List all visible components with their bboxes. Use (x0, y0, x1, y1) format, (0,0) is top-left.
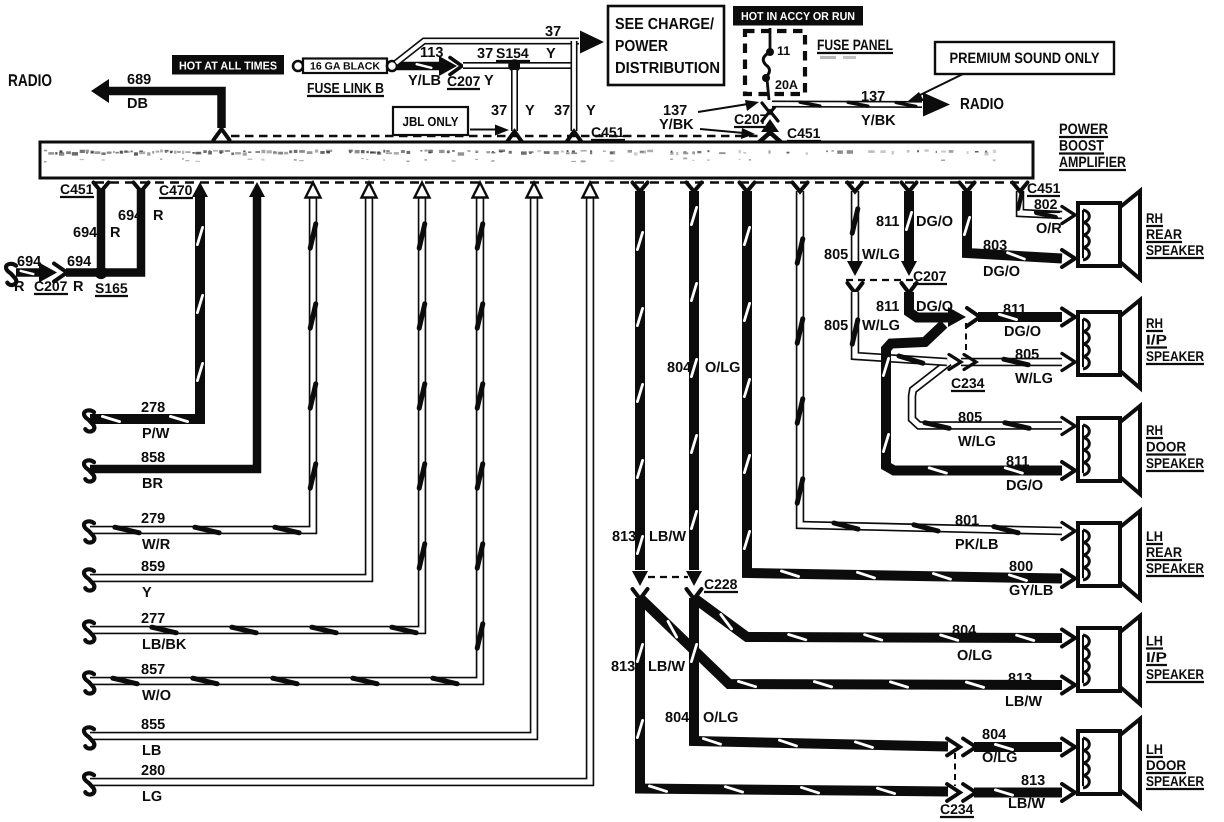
svg-text:PREMIUM SOUND ONLY: PREMIUM SOUND ONLY (950, 50, 1100, 67)
svg-text:858: 858 (141, 450, 165, 466)
svg-text:805: 805 (824, 318, 848, 334)
svg-text:C470: C470 (159, 182, 193, 198)
svg-text:C207: C207 (34, 278, 68, 294)
svg-text:SPEAKER: SPEAKER (1146, 560, 1204, 576)
svg-text:LB/W: LB/W (648, 659, 685, 675)
svg-text:16 GA BLACK: 16 GA BLACK (310, 61, 380, 73)
svg-text:811: 811 (876, 214, 899, 230)
svg-text:C207: C207 (734, 111, 768, 127)
svg-text:REAR: REAR (1146, 226, 1182, 242)
svg-text:C451: C451 (60, 181, 94, 197)
svg-text:SPEAKER: SPEAKER (1146, 666, 1204, 682)
svg-text:HOT IN ACCY OR RUN: HOT IN ACCY OR RUN (741, 11, 855, 23)
svg-text:Y/LB: Y/LB (408, 73, 441, 89)
svg-text:LH: LH (1146, 633, 1163, 649)
svg-text:RADIO: RADIO (960, 96, 1004, 113)
svg-text:W/LG: W/LG (1015, 371, 1053, 387)
svg-text:801: 801 (955, 513, 979, 529)
svg-text:811: 811 (1003, 302, 1026, 318)
svg-text:Y/BK: Y/BK (659, 117, 694, 133)
svg-text:805: 805 (824, 247, 848, 263)
svg-text:O/LG: O/LG (982, 750, 1017, 766)
svg-text:804: 804 (982, 727, 1006, 743)
svg-text:LB/W: LB/W (1008, 796, 1045, 812)
svg-text:804: 804 (667, 360, 691, 376)
svg-text:Y: Y (484, 73, 494, 89)
svg-text:S165: S165 (95, 280, 128, 296)
svg-text:LG: LG (142, 789, 162, 805)
svg-text:GY/LB: GY/LB (1009, 583, 1053, 599)
svg-text:RH: RH (1146, 210, 1163, 226)
svg-text:DG/O: DG/O (983, 264, 1020, 280)
svg-text:11: 11 (777, 44, 790, 58)
svg-text:POWER: POWER (615, 38, 668, 55)
svg-text:20A: 20A (775, 78, 798, 92)
svg-text:W/O: W/O (142, 688, 171, 704)
svg-text:DB: DB (127, 96, 148, 112)
svg-text:I/P: I/P (1146, 332, 1167, 348)
svg-text:BR: BR (142, 476, 163, 492)
svg-text:C234: C234 (951, 375, 985, 391)
svg-text:859: 859 (141, 559, 165, 575)
svg-text:803: 803 (983, 238, 1007, 254)
svg-text:278: 278 (141, 400, 165, 416)
svg-text:PK/LB: PK/LB (955, 537, 999, 553)
svg-text:804: 804 (952, 623, 976, 639)
svg-text:SPEAKER: SPEAKER (1146, 242, 1204, 258)
svg-text:LH: LH (1146, 741, 1163, 757)
svg-text:277: 277 (141, 611, 165, 627)
svg-text:813: 813 (1021, 773, 1045, 789)
svg-text:C451: C451 (591, 124, 625, 140)
svg-text:SPEAKER: SPEAKER (1146, 773, 1204, 789)
svg-text:LB/W: LB/W (1005, 694, 1042, 710)
svg-text:DISTRIBUTION: DISTRIBUTION (615, 60, 720, 77)
svg-text:802: 802 (1034, 196, 1058, 212)
svg-text:C451: C451 (1027, 180, 1061, 196)
svg-text:804: 804 (665, 710, 689, 726)
svg-text:37: 37 (545, 24, 561, 40)
svg-text:LB/BK: LB/BK (142, 637, 187, 653)
svg-text:C207: C207 (447, 73, 481, 89)
svg-text:137: 137 (861, 89, 885, 105)
svg-text:805: 805 (958, 410, 982, 426)
svg-text:AMPLIFIER: AMPLIFIER (1059, 154, 1126, 171)
svg-text:694: 694 (17, 254, 41, 270)
svg-text:694: 694 (118, 208, 142, 224)
svg-text:C207: C207 (913, 268, 947, 284)
svg-text:DG/O: DG/O (916, 214, 953, 230)
svg-text:811: 811 (876, 299, 899, 315)
svg-text:HOT AT ALL TIMES: HOT AT ALL TIMES (179, 61, 277, 73)
svg-text:DOOR: DOOR (1146, 439, 1186, 455)
svg-text:R: R (153, 208, 164, 224)
svg-text:O/R: O/R (1036, 221, 1062, 237)
svg-text:689: 689 (127, 72, 151, 88)
svg-text:813: 813 (1008, 671, 1032, 687)
svg-text:855: 855 (141, 717, 165, 733)
svg-text:RADIO: RADIO (8, 71, 52, 90)
svg-text:37: 37 (554, 103, 570, 119)
svg-text:694: 694 (67, 254, 91, 270)
svg-text:LB: LB (142, 743, 161, 759)
svg-text:FUSE LINK B: FUSE LINK B (307, 81, 384, 97)
svg-text:POWER: POWER (1059, 121, 1108, 138)
svg-text:S154: S154 (496, 45, 529, 61)
svg-text:REAR: REAR (1146, 544, 1182, 560)
svg-text:RH: RH (1146, 315, 1163, 331)
svg-text:SPEAKER: SPEAKER (1146, 455, 1204, 471)
svg-text:Y: Y (525, 103, 535, 119)
svg-text:R: R (73, 279, 84, 295)
svg-text:O/LG: O/LG (705, 360, 740, 376)
svg-text:Y/BK: Y/BK (861, 113, 896, 129)
svg-text:I/P: I/P (1146, 649, 1167, 665)
svg-text:C228: C228 (704, 576, 738, 592)
svg-text:P/W: P/W (142, 426, 170, 442)
svg-text:805: 805 (1015, 347, 1039, 363)
svg-text:800: 800 (1009, 559, 1033, 575)
svg-text:DG/O: DG/O (1006, 478, 1043, 494)
svg-text:811: 811 (1006, 454, 1029, 470)
svg-text:37: 37 (477, 46, 493, 62)
svg-text:RH: RH (1146, 422, 1163, 438)
svg-text:C234: C234 (940, 801, 974, 817)
svg-text:W/LG: W/LG (862, 318, 900, 334)
svg-text:FUSE PANEL: FUSE PANEL (817, 37, 893, 54)
svg-text:DG/O: DG/O (916, 299, 953, 315)
svg-text:JBL ONLY: JBL ONLY (403, 114, 459, 129)
svg-text:DG/O: DG/O (1004, 324, 1041, 340)
svg-text:Y: Y (142, 585, 152, 601)
svg-text:SPEAKER: SPEAKER (1146, 348, 1204, 364)
svg-text:280: 280 (141, 763, 165, 779)
svg-text:O/LG: O/LG (957, 648, 992, 664)
svg-text:857: 857 (141, 662, 165, 678)
svg-text:37: 37 (491, 103, 507, 119)
svg-text:W/R: W/R (142, 537, 171, 553)
svg-text:Y: Y (586, 103, 596, 119)
svg-text:W/LG: W/LG (958, 434, 996, 450)
svg-text:Y: Y (546, 46, 556, 62)
svg-text:DOOR: DOOR (1146, 757, 1186, 773)
svg-text:694: 694 (73, 225, 97, 241)
svg-text:W/LG: W/LG (862, 247, 900, 263)
svg-text:C451: C451 (787, 125, 821, 141)
svg-text:LB/W: LB/W (649, 529, 686, 545)
svg-text:LH: LH (1146, 528, 1163, 544)
svg-text:279: 279 (141, 511, 165, 527)
svg-text:813: 813 (611, 659, 635, 675)
svg-text:R: R (14, 279, 25, 295)
svg-text:BOOST: BOOST (1059, 138, 1104, 155)
svg-text:O/LG: O/LG (703, 710, 738, 726)
svg-text:813: 813 (612, 529, 636, 545)
svg-text:R: R (110, 225, 121, 241)
svg-text:113: 113 (420, 45, 443, 61)
svg-text:SEE CHARGE/: SEE CHARGE/ (615, 16, 714, 33)
